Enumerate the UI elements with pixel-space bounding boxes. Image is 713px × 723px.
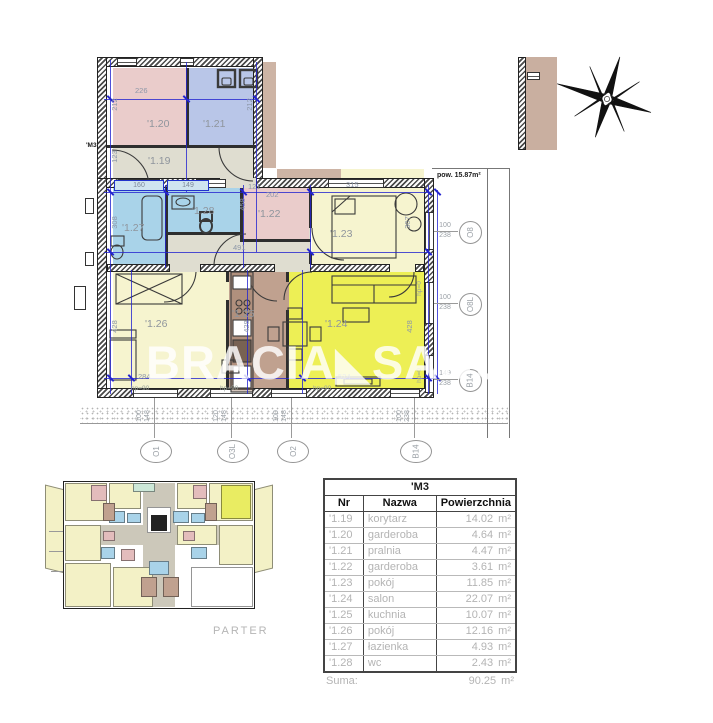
room-1-25 <box>229 272 289 392</box>
wall-left-main <box>97 178 107 398</box>
neighbor-strip-top2 <box>341 169 424 178</box>
dim-428-left: 428 <box>110 320 119 333</box>
table-row: '1.20garderoba4.64m² <box>324 528 516 544</box>
table-row: '1.24salon22.07m² <box>324 592 516 608</box>
dim-491: 491 <box>233 243 246 252</box>
dimline <box>437 190 438 394</box>
neighbor-strip-top <box>277 169 341 178</box>
overview-pink <box>103 531 115 541</box>
door-gap-126 <box>170 264 200 272</box>
marker-O8L-w: 100 <box>434 294 456 301</box>
neighbor-strip-vertical <box>263 62 276 168</box>
overview-plan: PARTER <box>45 473 275 643</box>
table-row: '1.19korytarz14.02m² <box>324 512 516 528</box>
overview-balcony-line <box>49 551 63 552</box>
table-sum-row: Suma: 90.25m² <box>323 673 517 689</box>
table-row: '1.22garderoba3.61m² <box>324 560 516 576</box>
label-1-21: '1.21 <box>203 118 225 130</box>
door-gap-123-124 <box>390 264 415 272</box>
label-1-26: '1.26 <box>145 318 167 330</box>
table-row: '1.28wc2.43m² <box>324 656 516 673</box>
room-1-20 <box>113 68 187 146</box>
overview-room-white <box>191 567 253 607</box>
overview-bath <box>191 547 207 559</box>
overview-room <box>219 525 253 565</box>
hp0-2: hp=0 <box>416 368 423 383</box>
wall-left-upper <box>97 57 107 188</box>
partition-120-119 <box>107 145 256 148</box>
col-nr: Nr <box>324 496 363 512</box>
partition-122-corridor <box>240 239 311 242</box>
sum-value: 90.25m² <box>469 675 514 687</box>
col-powierzchnia: Powierzchnia <box>436 496 516 512</box>
overview-tan <box>205 503 217 521</box>
hp90-3: hp=90 <box>313 385 331 392</box>
dimline <box>165 185 166 268</box>
dim-524: 524 <box>338 372 351 381</box>
hp90-2: hp=90 <box>220 385 238 392</box>
marker-O1-dims: 100148 <box>136 410 152 422</box>
wall-mid-b <box>200 264 275 272</box>
dimline <box>104 99 258 100</box>
floorplan-sheet: 226 212 212 123 'M3 160 149 121 202 315 … <box>0 0 713 723</box>
table-row: '1.21pralnia4.47m² <box>324 544 516 560</box>
terrace-line-v1 <box>487 168 488 438</box>
dim-212-left: 212 <box>110 98 119 111</box>
table-row: '1.25kuchnia10.07m² <box>324 608 516 624</box>
label-1-22: '1.22 <box>258 208 280 220</box>
window-O8 <box>425 212 434 250</box>
dim-226: 226 <box>135 86 148 95</box>
marker-O2: O2 <box>277 440 309 463</box>
window-121 <box>180 58 194 66</box>
label-1-28: '1.28 <box>192 205 214 217</box>
facade-box-3 <box>74 286 86 310</box>
overview-room <box>65 563 111 607</box>
label-1-25: '1.25 <box>232 308 254 320</box>
overview-pink <box>193 485 207 499</box>
col-nazwa: Nazwa <box>363 496 436 512</box>
dim-428-mid: 428 <box>242 320 251 333</box>
marker-O3L-dims: 120148 <box>213 410 229 422</box>
marker-B14r-w: 149 <box>434 370 456 377</box>
neighbor-wall <box>518 57 526 150</box>
dimline <box>256 62 257 252</box>
marker-O8-h: 238 <box>434 232 456 239</box>
label-1-23: '1.23 <box>330 228 352 240</box>
marker-O1: O1 <box>140 440 172 463</box>
label-1-24: '1.24 <box>325 318 347 330</box>
overview-caption: PARTER <box>213 625 269 637</box>
label-1-19: '1.19 <box>148 155 170 167</box>
hp0-1: hp=0 <box>416 281 423 296</box>
marker-O2-dims: 100148 <box>273 410 289 422</box>
dim-149-box: 149 <box>167 180 209 191</box>
table-row: '1.23pokój11.85m² <box>324 576 516 592</box>
dim-307: 307 <box>403 216 412 229</box>
overview-tan <box>163 577 179 597</box>
dim-315: 315 <box>346 180 359 189</box>
terrace-line-v2 <box>509 168 510 438</box>
table-row: '1.27łazienka4.93m² <box>324 640 516 656</box>
dimline <box>428 185 429 394</box>
marker-B14-bottom: B14 <box>400 440 432 463</box>
marker-O8L-h: 238 <box>434 304 456 311</box>
wall-right-upper <box>253 57 263 188</box>
overview-room <box>65 525 101 561</box>
room-1-24 <box>289 272 424 392</box>
marker-O8: O8 <box>459 221 482 244</box>
label-1-27: '1.27 <box>122 222 144 234</box>
marker-O8-w: 100 <box>434 222 456 229</box>
dim-202: 202 <box>266 190 279 199</box>
overview-tan <box>141 577 157 597</box>
partition-125-124a <box>286 272 289 282</box>
dim-428-right: 428 <box>405 320 414 333</box>
overview-pink <box>183 531 195 541</box>
dim-123: 123 <box>110 150 119 163</box>
overview-pink <box>91 485 107 501</box>
overview-tan <box>103 503 115 521</box>
dim-160-box: 160 <box>114 180 164 191</box>
overview-balcony-line <box>49 531 63 532</box>
marker-O3L: O3L <box>217 440 249 463</box>
overview-room-bright <box>221 485 251 519</box>
wall-mid-a <box>107 264 170 272</box>
overview-bath <box>149 561 169 575</box>
dim-458: 458 <box>238 198 247 211</box>
overview-bath <box>191 513 205 523</box>
table-title: 'M3 <box>324 479 516 496</box>
marker-B14b-dims: 100238 <box>396 410 412 422</box>
dim-121: 121 <box>248 182 261 191</box>
overview-balcony-line <box>51 571 63 572</box>
window-O8L <box>425 282 434 324</box>
overview-pink <box>121 549 135 561</box>
compass-rose-icon <box>548 50 666 153</box>
hp90-1: hp=90 <box>131 385 149 392</box>
partition-125-124b <box>286 310 289 392</box>
overview-stair <box>151 515 167 531</box>
wall-mid-d <box>415 264 424 272</box>
area-table: 'M3 Nr Nazwa Powierzchnia '1.19korytarz1… <box>323 478 517 689</box>
terrace-area-note: pow. 15.87m² <box>437 172 481 179</box>
partition-128-corridor <box>165 232 243 235</box>
overview-bath <box>173 511 189 523</box>
dim-284: 284 <box>138 372 151 381</box>
door-B14-bottom <box>390 389 420 398</box>
marker-B14r-h: 238 <box>434 380 456 387</box>
table-row: '1.26pokój12.16m² <box>324 624 516 640</box>
door-gap-124 <box>275 264 310 272</box>
dimline <box>186 62 187 192</box>
dimline <box>104 378 437 379</box>
dimline <box>104 252 428 253</box>
window-120 <box>117 58 137 66</box>
wall-mid-c <box>310 264 390 272</box>
partition-126-125a <box>226 272 229 282</box>
overview-bath <box>101 547 115 559</box>
unit-label-m3: 'M3 <box>86 142 97 149</box>
terrace-line-top <box>432 168 509 169</box>
dimline <box>310 185 311 268</box>
overview-room-green <box>133 483 155 492</box>
dim-212-right: 212 <box>245 98 254 111</box>
marker-B14-right: B14 <box>459 369 482 392</box>
dim-308: 308 <box>110 216 119 229</box>
label-1-20: '1.20 <box>147 118 169 130</box>
sum-label: Suma: <box>326 675 358 687</box>
overview-bath <box>127 513 141 523</box>
neighbor-window <box>527 72 540 80</box>
facade-box-1 <box>85 198 94 214</box>
marker-O8L: O8L <box>459 293 482 316</box>
facade-box-2 <box>85 252 94 266</box>
